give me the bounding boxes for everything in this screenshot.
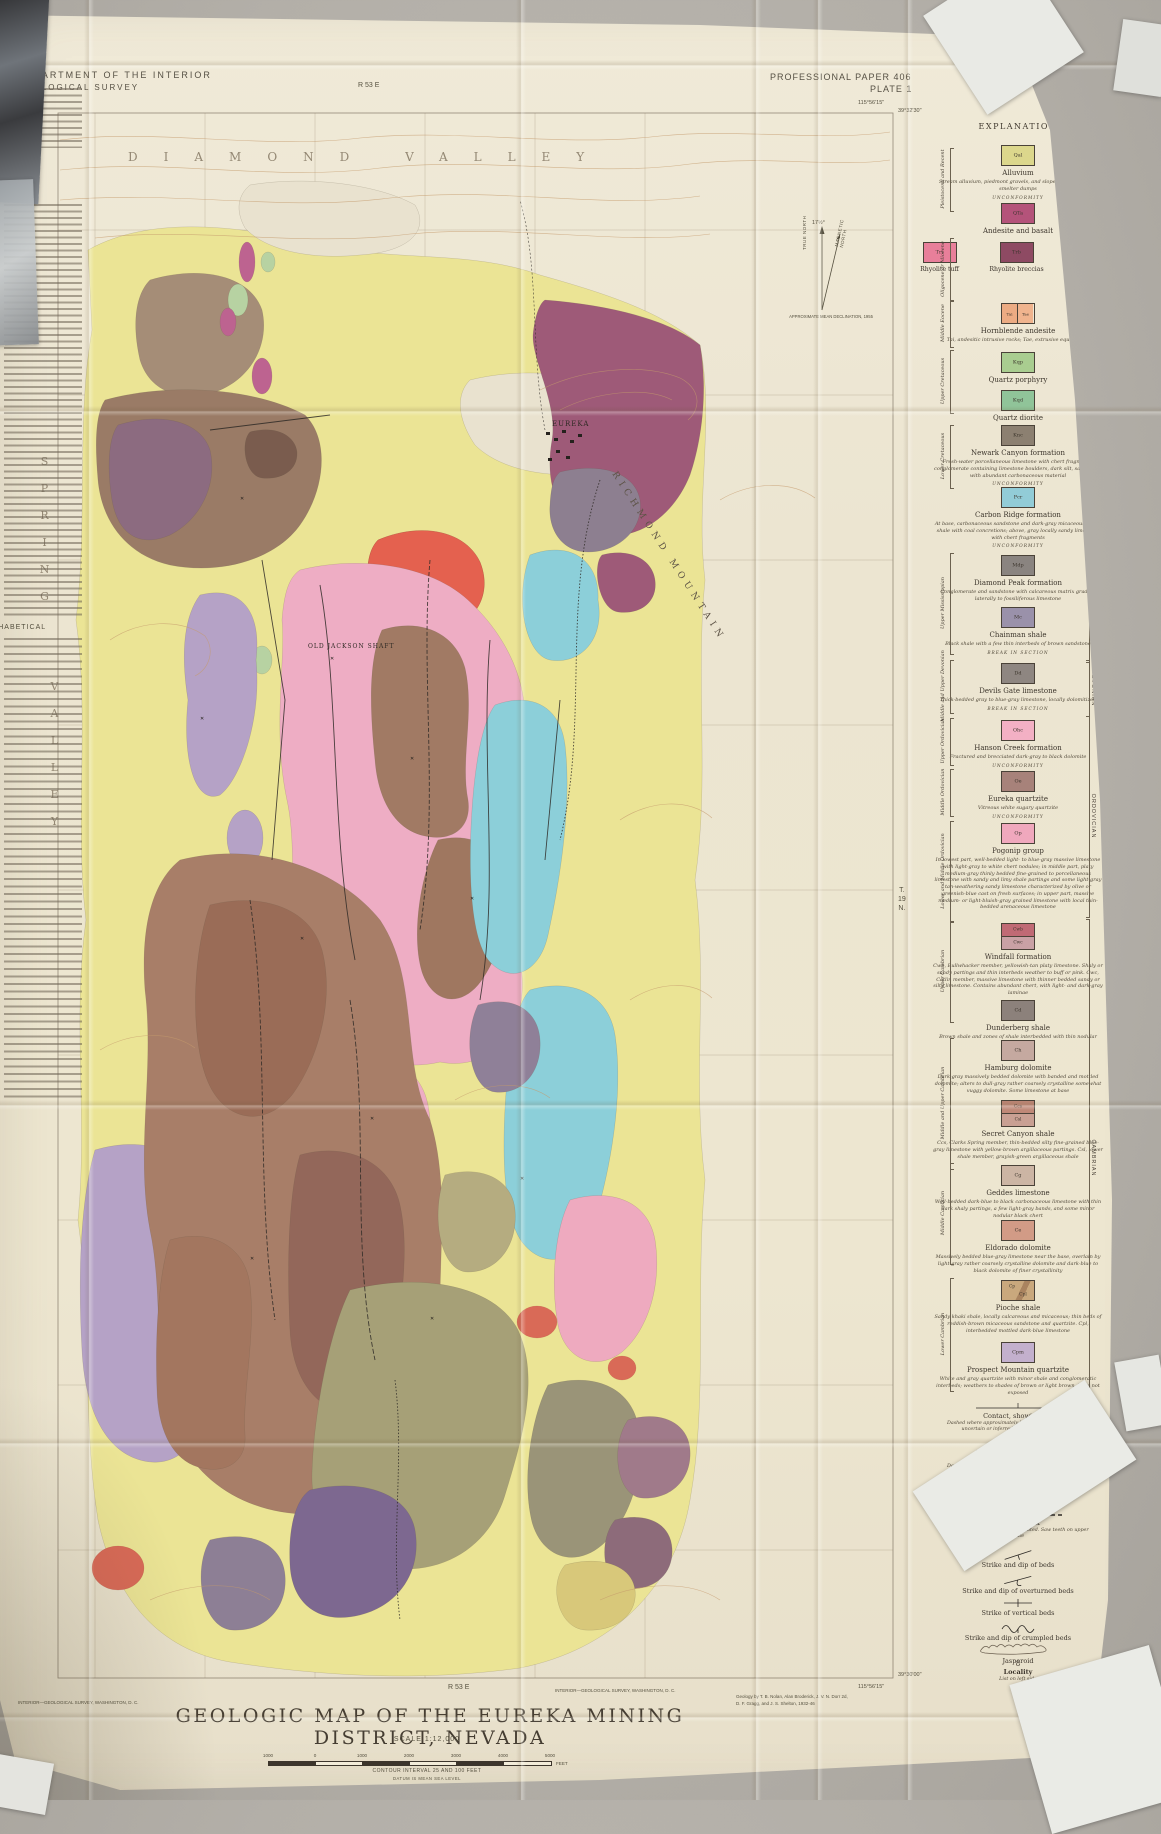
unit-description: Fractured and brecciated dark-gray to bl… xyxy=(933,754,1103,761)
scale-bar-label: 1000 xyxy=(263,1753,273,1758)
unit-description: In lowest part, well-bedded light- to bl… xyxy=(933,857,1103,911)
unit-description: Stream alluvium, piedmont gravels, and s… xyxy=(933,179,1103,193)
unit-name: Dunderberg shale xyxy=(908,1024,1128,1032)
unit-swatch: Cpm xyxy=(1001,1342,1035,1363)
scale-bar-segment xyxy=(268,1761,317,1766)
unit-swatch: Oe xyxy=(1001,771,1035,792)
unit-description: Sandy khaki shale, locally calcareous an… xyxy=(933,1314,1103,1334)
corner-coord-lon-bottom: 115°56'15" xyxy=(858,1684,884,1690)
true-north-label: TRUE NORTH xyxy=(802,216,807,250)
scale-bar-segment xyxy=(456,1761,505,1766)
declination-note: APPROXIMATE MEAN DECLINATION, 1955 xyxy=(786,314,876,320)
unit-description: Vitreous white sugary quartzite xyxy=(933,805,1103,812)
declination-diagram: 17½° TRUE NORTH MAGNETIC NORTH APPROXIMA… xyxy=(800,222,860,332)
svg-text:✕: ✕ xyxy=(330,656,334,662)
tape-strip xyxy=(0,1753,54,1815)
svg-text:✕: ✕ xyxy=(250,1256,254,1262)
unit-description: Conglomerate and sandstone with calcareo… xyxy=(933,589,1103,603)
unit-swatch: Trp xyxy=(1078,242,1112,263)
symbol-name: Strike and dip of overturned beds xyxy=(908,1587,1128,1595)
svg-text:✕: ✕ xyxy=(520,1176,524,1182)
unit-description: Cwb, Bullwhacker member, yellowish-tan p… xyxy=(933,963,1103,997)
unit-swatch: Ccs xyxy=(1001,1100,1035,1114)
scale-bar-segment xyxy=(315,1761,364,1766)
unit-name: Chainman shale xyxy=(908,631,1128,639)
scale-bar: 1000010002000300040005000FEET xyxy=(268,1753,598,1769)
scale-bar-label: 0 xyxy=(314,1753,317,1758)
unit-swatch: Mc xyxy=(1001,607,1035,628)
scale-bar-label: 3000 xyxy=(451,1753,461,1758)
unit-name: Andesite and basalt xyxy=(908,227,1128,235)
scale-bar-label: 2000 xyxy=(404,1753,414,1758)
unit-swatch: Pcr xyxy=(1001,487,1035,508)
svg-text:✕: ✕ xyxy=(410,756,414,762)
unit-swatch: Knc xyxy=(1001,425,1035,446)
tape-strip xyxy=(1114,1355,1161,1432)
unit-swatch: QTa xyxy=(1001,203,1035,224)
township-label: T.19N. xyxy=(898,886,906,913)
unit-description: Black shale with a few thin interbeds of… xyxy=(933,641,1103,648)
town-label: EUREKA xyxy=(552,420,589,428)
unit-swatch: Cwc xyxy=(1001,937,1035,950)
credit-line-2: D. F. Gragg, and J. S. Shelton, 1932-46 xyxy=(736,1701,815,1706)
contour-note: CONTOUR INTERVAL 25 AND 100 FEET xyxy=(267,1768,587,1774)
scale-bar-segment xyxy=(503,1761,552,1766)
corner-coord-lat-top: 39°32'30" xyxy=(898,108,922,114)
unit-swatch: CpCpl xyxy=(1001,1280,1035,1301)
strike-dip-symbol-icon xyxy=(998,1547,1038,1561)
unit-swatch: Dd xyxy=(1001,663,1035,684)
unit-description: Fresh-water porcellaneous limestone with… xyxy=(933,459,1103,479)
legend-symbol-crumpled: Strike and dip of crumpled beds xyxy=(908,1620,1128,1642)
svg-text:✕: ✕ xyxy=(470,896,474,902)
scale-text: SCALE 1:12,000 xyxy=(327,1736,527,1743)
scale-bar-label: 1000 xyxy=(357,1753,367,1758)
unit-description: Thick-bedded gray to blue-gray limestone… xyxy=(933,697,1103,704)
unit-swatch: Kqp xyxy=(1001,352,1035,373)
range-label-bottom: R 53 E xyxy=(448,1684,469,1691)
scale-bar-label: 5000 xyxy=(545,1753,555,1758)
unit-description: Dark-gray massively bedded dolomite with… xyxy=(933,1074,1103,1094)
datum-note: DATUM IS MEAN SEA LEVEL xyxy=(267,1776,587,1781)
legend-unit: PcrCarbon Ridge formationAt base, carbon… xyxy=(908,487,1128,549)
shaft-label: OLD JACKSON SHAFT xyxy=(308,643,394,650)
unit-name: Rhyolite plugs, dikes, and flows xyxy=(1062,266,1128,280)
tape-strip xyxy=(0,179,39,346)
declination-angle: 17½° xyxy=(812,220,825,226)
legend-title: EXPLANATION xyxy=(948,122,1088,131)
svg-text:✕: ✕ xyxy=(240,496,244,502)
unit-swatch: Kqd xyxy=(1001,390,1035,411)
unit-swatch: Csl xyxy=(1001,1114,1035,1127)
unit-swatch: Cg xyxy=(1001,1165,1035,1186)
unit-swatch: Op xyxy=(1001,823,1035,844)
unit-name: Pioche shale xyxy=(908,1304,1128,1312)
unit-name: Rhyolite breccias xyxy=(985,266,1048,273)
unit-name: Carbon Ridge formation xyxy=(908,511,1128,519)
unit-swatch: Cd xyxy=(1001,1000,1035,1021)
list-subheading: ALPHABETICAL xyxy=(0,624,46,631)
geologic-units xyxy=(76,181,706,1676)
unit-swatch: Cwb xyxy=(1001,923,1035,937)
crumpled-symbol-icon xyxy=(996,1620,1040,1634)
unit-swatch: Mdp xyxy=(1001,555,1035,576)
unit-swatch: TaiTae xyxy=(1001,303,1035,324)
scale-bar-segment xyxy=(362,1761,411,1766)
north-arrows-icon xyxy=(800,222,860,312)
svg-text:✕: ✕ xyxy=(300,936,304,942)
legend-symbol-vertical: Strike of vertical beds xyxy=(908,1597,1128,1617)
scale-bar-unit: FEET xyxy=(556,1761,568,1766)
unit-swatch: Qal xyxy=(1001,145,1035,166)
unit-swatch: Ohc xyxy=(1001,720,1035,741)
printer-note-center: INTERIOR—GEOLOGICAL SURVEY, WASHINGTON, … xyxy=(555,1688,675,1693)
unit-description: Ccs, Clarks Spring member, thin-bedded s… xyxy=(933,1140,1103,1160)
vertical-symbol-icon xyxy=(998,1597,1038,1609)
unit-name: Quartz diorite xyxy=(908,414,1128,422)
legend-symbol-overturned: Strike and dip of overturned beds xyxy=(908,1573,1128,1595)
valley-label-diamond: DIAMOND VALLEY xyxy=(128,150,610,164)
tape-strip xyxy=(1113,19,1161,97)
unit-separator: UNCONFORMITY xyxy=(908,544,1128,549)
unit-name: Eldorado dolomite xyxy=(908,1244,1128,1252)
jasperoid-symbol-icon xyxy=(973,1641,1063,1657)
symbol-name: Strike of vertical beds xyxy=(908,1609,1128,1617)
scale-bar-label: 4000 xyxy=(498,1753,508,1758)
svg-text:✕: ✕ xyxy=(370,1116,374,1122)
unit-swatch: Trb xyxy=(1000,242,1034,263)
unit-description: At base, carbonaceous sandstone and dark… xyxy=(933,521,1103,541)
unit-description: Well-bedded dark-blue to black carbonace… xyxy=(933,1199,1103,1219)
overturned-symbol-icon xyxy=(998,1573,1038,1587)
svg-text:✕: ✕ xyxy=(430,1316,434,1322)
corner-coord-lon-top: 115°56'15" xyxy=(858,100,884,106)
unit-swatch: Ch xyxy=(1001,1040,1035,1061)
printer-note-left: INTERIOR—GEOLOGICAL SURVEY, WASHINGTON, … xyxy=(18,1700,138,1705)
svg-text:✕: ✕ xyxy=(200,716,204,722)
unit-swatch: Ce xyxy=(1001,1220,1035,1241)
unit-description: Tai, andesitic intrusive rocks; Tae, ext… xyxy=(933,337,1103,344)
symbol-name: Strike and dip of beds xyxy=(908,1561,1128,1569)
range-label-top: R 53 E xyxy=(358,82,379,89)
unit-name: Prospect Mountain quartzite xyxy=(908,1366,1128,1374)
unit-description: Massively bedded blue-gray limestone nea… xyxy=(933,1254,1103,1274)
legend-symbol-strike-dip: Strike and dip of beds xyxy=(908,1547,1128,1569)
scale-bar-segment xyxy=(409,1761,458,1766)
credit-line-1: Geology by T. B. Nolan, Alan Broderick, … xyxy=(736,1694,848,1699)
